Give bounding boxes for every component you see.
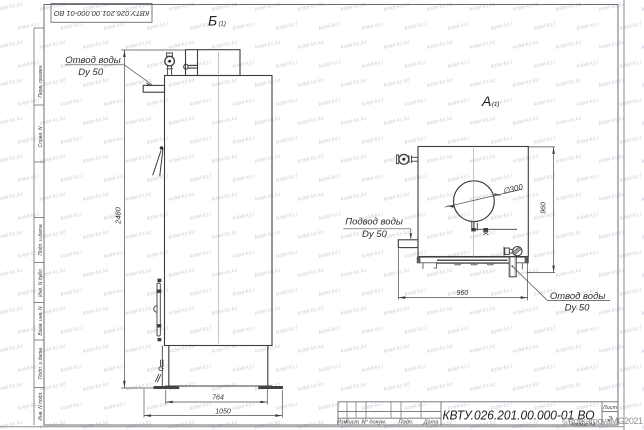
- svg-text:(1): (1): [219, 22, 226, 28]
- svg-text:Формат А4: Формат А4: [570, 422, 595, 428]
- svg-text:Справ. N: Справ. N: [38, 126, 44, 147]
- svg-text:Подп. и дата: Подп. и дата: [38, 348, 44, 380]
- svg-text:А: А: [481, 93, 491, 109]
- svg-text:Взам. инв. N: Взам. инв. N: [38, 306, 44, 336]
- svg-text:Подп. и дата: Подп. и дата: [38, 224, 44, 256]
- svg-text:Инв. N дубл.: Инв. N дубл.: [38, 268, 44, 297]
- svg-text:1050: 1050: [215, 408, 231, 415]
- svg-text:Инв. N подл.: Инв. N подл.: [38, 391, 44, 420]
- svg-text:Лист: Лист: [602, 405, 618, 411]
- svg-text:764: 764: [212, 394, 224, 401]
- svg-text:2480: 2480: [114, 206, 123, 225]
- svg-text:Dy 50: Dy 50: [362, 229, 388, 240]
- svg-text:(1): (1): [492, 102, 499, 108]
- svg-text:Лист: Лист: [344, 419, 360, 425]
- svg-text:Dy 50: Dy 50: [78, 67, 104, 78]
- svg-text:Б: Б: [208, 13, 217, 29]
- svg-text:Дата: Дата: [423, 419, 439, 425]
- svg-text:N° докум.: N° докум.: [362, 419, 387, 425]
- svg-text:Отвод воды: Отвод воды: [65, 55, 121, 66]
- svg-text:Подвод воды: Подвод воды: [345, 217, 403, 228]
- svg-text:960: 960: [456, 290, 468, 297]
- svg-text:Перв. примен.: Перв. примен.: [38, 64, 44, 97]
- svg-text:960: 960: [540, 202, 547, 214]
- svg-text:КВТУ.026.201.00.000-01 ВО: КВТУ.026.201.00.000-01 ВО: [54, 9, 150, 18]
- svg-text:Dy 50: Dy 50: [565, 302, 591, 313]
- svg-text:Подп.: Подп.: [399, 419, 414, 425]
